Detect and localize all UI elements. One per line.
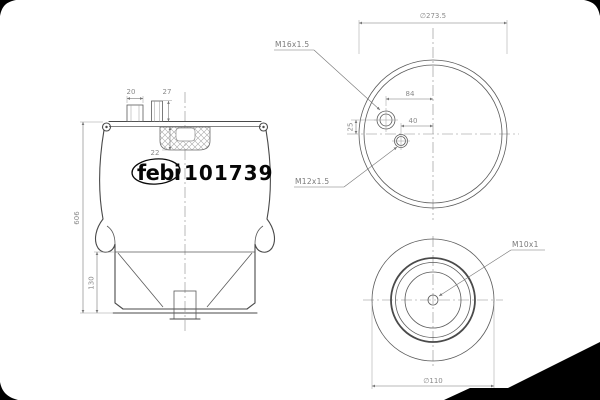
dim-stud-offset-x-value: 84 [406, 90, 415, 98]
dim-bumper-depth-value: 22 [151, 149, 160, 157]
mounting-stud-left [127, 105, 143, 122]
port-hole-m12 [392, 132, 410, 150]
side-view: 20 27 22 606 130 febi [73, 88, 274, 332]
dim-outer-diameter-value: ∅273.5 [420, 12, 446, 20]
dim-stud-offset-y: 25 [347, 120, 378, 134]
dim-overall-height-value: 606 [73, 211, 81, 225]
dim-base-diameter-value: ∅110 [423, 377, 442, 385]
top-view: ∅273.5 84 40 [274, 12, 519, 220]
bump-stop-hatched [160, 127, 210, 150]
dim-stud-width: 20 [127, 88, 143, 103]
photo-corner-top-right [584, 0, 600, 16]
dim-stud-height: 27 [163, 88, 172, 122]
part-number: 101739 [184, 161, 274, 185]
technical-drawing-photo: 20 27 22 606 130 febi [0, 0, 600, 400]
label-center-thread: M10x1 [439, 240, 545, 296]
label-center-thread-value: M10x1 [512, 240, 539, 249]
label-stud-thread: M16x1.5 [274, 40, 380, 110]
dim-piston-height: 130 [88, 252, 115, 313]
dim-stud-height-value: 27 [163, 88, 172, 96]
dim-stud-offset-x: 84 [386, 90, 433, 106]
brand-logo: febi 101739 [131, 157, 273, 185]
bottom-view: M10x1 ∅110 [363, 236, 545, 389]
photo-corner-top-left [0, 0, 16, 16]
brand-text: febi [137, 161, 181, 185]
photo-corner-bottom-left [0, 382, 18, 400]
dim-piston-height-value: 130 [88, 276, 96, 289]
label-stud-thread-value: M16x1.5 [275, 40, 309, 49]
dim-port-offset-x: 40 [401, 117, 433, 132]
dim-stud-offset-y-value: 25 [347, 123, 355, 132]
air-port-stud-right [152, 101, 163, 122]
label-port-thread: M12x1.5 [294, 147, 397, 187]
dim-port-offset-x-value: 40 [409, 117, 418, 125]
air-spring-drawing: 20 27 22 606 130 febi [0, 0, 600, 400]
dim-stud-width-value: 20 [127, 88, 136, 96]
stud-hole-m16 [374, 108, 398, 132]
label-port-thread-value: M12x1.5 [295, 177, 329, 186]
bump-stop-recess [176, 128, 195, 141]
